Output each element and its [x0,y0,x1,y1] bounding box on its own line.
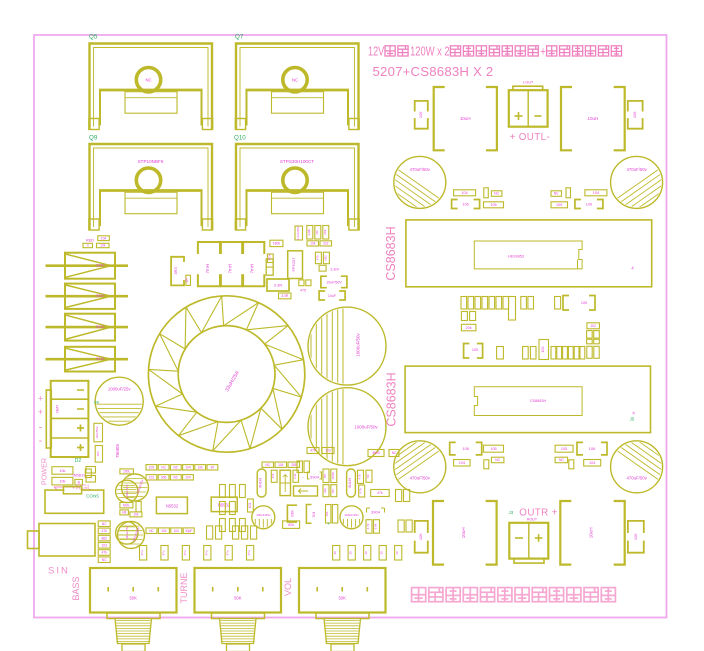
svg-text:2.2k: 2.2k [293,473,297,479]
svg-text:305: 305 [291,463,297,467]
svg-text:104: 104 [593,191,599,195]
svg-text:LOUT: LOUT [523,81,534,85]
svg-text:10uF/50V: 10uF/50V [95,426,99,438]
svg-text:-: - [39,422,43,434]
svg-text:NC: NC [145,78,151,83]
svg-text:100uF/25v: 100uF/25v [256,513,271,517]
svg-text:100L: 100L [123,470,130,474]
svg-text:470uF/50v: 470uF/50v [410,167,431,172]
svg-text:ROUT: ROUT [527,518,538,522]
svg-text:30: 30 [380,551,384,555]
svg-text:SS43: SS43 [96,294,105,298]
svg-text:470uF/50v: 470uF/50v [626,167,647,172]
svg-text:3R3: 3R3 [173,267,178,275]
svg-text:105: 105 [490,447,496,451]
svg-text:47k: 47k [102,551,108,555]
svg-text:104: 104 [459,461,465,465]
svg-text:50K: 50K [129,596,137,601]
svg-text:N5532: N5532 [166,504,179,509]
svg-text:RED: RED [86,238,94,242]
svg-text:47u: 47u [183,550,187,555]
svg-text:120W x 2: 120W x 2 [410,45,450,59]
svg-text:SS43: SS43 [96,325,105,329]
svg-text:1000uF/50v: 1000uF/50v [354,425,378,430]
svg-text:104: 104 [589,461,595,465]
svg-text:NC: NC [102,558,107,562]
svg-text:NC: NC [161,465,166,469]
svg-text:NC: NC [292,78,298,83]
svg-text:33pF: 33pF [185,529,192,533]
svg-text:106: 106 [589,446,596,451]
svg-text:POWER: POWER [40,458,49,485]
svg-text:106: 106 [462,202,468,206]
svg-text:82k: 82k [288,523,294,527]
svg-text:NC: NC [149,529,154,533]
svg-text:NC: NC [392,451,397,455]
svg-text:Q5: Q5 [89,34,98,41]
svg-text:-: - [302,475,304,480]
svg-text:470uF/50v: 470uF/50v [626,475,647,480]
svg-text:4.7k: 4.7k [366,523,370,529]
svg-text:180k: 180k [273,242,281,246]
svg-text:+: + [38,407,43,417]
svg-text:5207+CS8683H X 2: 5207+CS8683H X 2 [373,64,494,79]
svg-text:OUTR +: OUTR + [519,508,558,519]
svg-text:NC: NC [173,465,178,469]
svg-text:104: 104 [185,475,191,479]
svg-text:+: + [38,394,43,404]
svg-text:+: + [540,45,546,59]
svg-text:10k: 10k [198,465,204,469]
svg-text:103: 103 [541,347,545,353]
svg-text:105: 105 [633,533,638,540]
svg-text:J5: J5 [630,417,635,422]
svg-text:3904: 3904 [371,510,381,515]
svg-text:SS43: SS43 [96,264,105,268]
svg-text:4.7k: 4.7k [358,473,362,479]
svg-text:NC: NC [315,229,319,234]
svg-text:NC: NC [554,192,559,196]
svg-text:30: 30 [364,551,368,555]
svg-text:47u: 47u [226,550,230,555]
svg-text:10uH: 10uH [588,116,599,121]
svg-text:4: 4 [632,411,635,416]
svg-text:10uF: 10uF [328,294,337,298]
svg-text:104: 104 [278,463,284,467]
svg-text:NC: NC [494,192,499,196]
svg-text:3.3R: 3.3R [281,294,289,298]
svg-text:10uH: 10uH [460,116,471,121]
svg-text:105: 105 [556,203,562,207]
svg-text:105: 105 [418,111,423,118]
svg-text:103: 103 [101,544,107,548]
svg-text:0.1uF/25V: 0.1uF/25V [296,226,300,240]
svg-text:104: 104 [161,529,167,533]
svg-text:50K: 50K [338,596,346,601]
svg-text:105: 105 [418,533,423,540]
svg-text:10k: 10k [100,244,106,248]
svg-text:10uF/50V: 10uF/50V [326,281,342,285]
svg-text:Q9: Q9 [89,135,98,142]
svg-text:104: 104 [101,236,107,240]
svg-text:30: 30 [395,551,399,555]
svg-text:105: 105 [632,111,637,118]
svg-text:D6: D6 [94,400,100,405]
svg-text:NC: NC [366,473,370,478]
svg-text:105: 105 [490,203,496,207]
svg-text:90: 90 [211,465,215,469]
svg-text:-: - [39,435,43,447]
svg-text:TURNE: TURNE [179,573,189,604]
svg-text:10uH: 10uH [461,527,466,538]
svg-text:12V: 12V [368,45,385,59]
svg-text:101: 101 [325,511,329,516]
svg-text:NC: NC [265,463,270,467]
svg-text:C: C [87,244,90,248]
svg-text:47k: 47k [102,529,108,533]
svg-text:7mH: 7mH [250,264,255,273]
svg-text:IN5819: IN5819 [73,473,87,478]
svg-text:HE99853: HE99853 [508,255,524,259]
svg-text:100uF/25v: 100uF/25v [125,526,129,540]
svg-text:CS8683H: CS8683H [384,226,398,280]
svg-text:30: 30 [333,551,337,555]
svg-text:20k: 20k [323,229,327,234]
svg-text:102: 102 [590,324,596,328]
svg-text:Q10: Q10 [234,135,246,142]
svg-text:200k: 200k [291,510,295,517]
svg-text:470: 470 [315,255,319,260]
svg-text:106: 106 [586,202,592,206]
svg-text:BASS: BASS [71,576,81,600]
svg-text:IN4148: IN4148 [348,478,352,489]
svg-text:106: 106 [96,451,100,456]
svg-text:D2: D2 [75,458,82,464]
svg-text:479: 479 [310,449,316,453]
svg-text:101: 101 [248,503,252,509]
svg-text:MOL: MOL [123,503,130,507]
svg-text:NC: NC [102,522,107,526]
svg-text:7mH: 7mH [228,264,233,273]
svg-text:47u: 47u [162,550,166,555]
svg-text:STPS30H100CT: STPS30H100CT [280,159,314,164]
svg-text:106: 106 [462,446,469,451]
svg-text:NC: NC [173,475,178,479]
svg-text:CON5: CON5 [86,494,99,499]
svg-text:NC: NC [495,458,500,462]
svg-text:104: 104 [174,529,180,533]
svg-text:FP5207: FP5207 [291,257,296,272]
svg-text:304: 304 [312,512,316,518]
svg-text:3.3R: 3.3R [274,283,283,288]
svg-text:47u: 47u [140,550,144,555]
svg-text:30: 30 [349,551,353,555]
svg-text:100uF/25v: 100uF/25v [132,527,141,543]
svg-text:3904: 3904 [372,451,380,455]
svg-text:7mH: 7mH [205,264,210,273]
svg-text:+ OUTL-: + OUTL- [510,132,551,143]
svg-text:SIN: SIN [48,566,70,577]
svg-text:10k: 10k [59,469,65,473]
svg-text:33uH/25A: 33uH/25A [224,370,241,393]
svg-text:105: 105 [472,348,478,352]
svg-text:3904: 3904 [310,475,320,480]
svg-text:47k: 47k [377,491,383,495]
svg-text:10k: 10k [133,513,139,517]
svg-text:J3: J3 [509,510,514,515]
svg-text:47u: 47u [204,550,208,555]
svg-text:20k: 20k [466,326,472,330]
svg-text:100R: 100R [331,471,335,479]
svg-text:N02: N02 [323,255,327,261]
svg-text:104: 104 [461,191,467,195]
svg-text:2R: 2R [185,278,189,283]
svg-text:NC: NC [331,488,335,493]
svg-text:305: 305 [161,475,167,479]
svg-text:103: 103 [325,449,331,453]
svg-text:CS8683H: CS8683H [385,372,399,426]
svg-text:47u: 47u [247,550,251,555]
svg-text:103: 103 [149,475,155,479]
svg-text:4.7k: 4.7k [359,488,363,494]
svg-text:105: 105 [561,447,567,451]
svg-text:NC: NC [323,473,327,478]
svg-text:104: 104 [185,465,191,469]
svg-text:105: 105 [149,465,155,469]
svg-text:NC: NC [559,458,564,462]
svg-text:VBAT: VBAT [56,405,60,413]
svg-text:10k: 10k [59,480,65,484]
svg-text:1000uF/25v: 1000uF/25v [108,387,132,392]
svg-text:78M05: 78M05 [115,444,120,458]
svg-text:H8: H8 [122,511,126,515]
svg-text:47k: 47k [271,473,275,478]
svg-text:6.8k: 6.8k [374,523,378,529]
svg-text:CS8683H: CS8683H [530,399,547,403]
svg-text:240k: 240k [307,228,311,235]
svg-text:10k: 10k [310,242,316,246]
svg-text:470uF/50v: 470uF/50v [410,475,431,480]
svg-text:222: 222 [323,242,329,246]
svg-text:STP10NBF6: STP10NBF6 [138,159,164,164]
svg-text:IN4148: IN4148 [259,478,263,489]
svg-text:4: 4 [631,266,634,271]
svg-text:882: 882 [101,536,107,540]
svg-text:34k: 34k [323,488,327,493]
svg-text:10uH: 10uH [589,527,594,538]
svg-text:Q7: Q7 [235,34,244,41]
svg-text:SS43: SS43 [96,357,105,361]
svg-text:VOL: VOL [283,578,293,596]
svg-text:105: 105 [581,301,587,305]
svg-text:3.3nF: 3.3nF [330,267,340,271]
svg-text:1000uF/50v: 1000uF/50v [356,333,361,357]
svg-text:475: 475 [300,289,306,293]
svg-text:100uF/25v: 100uF/25v [344,513,359,517]
svg-text:50K: 50K [234,596,242,601]
